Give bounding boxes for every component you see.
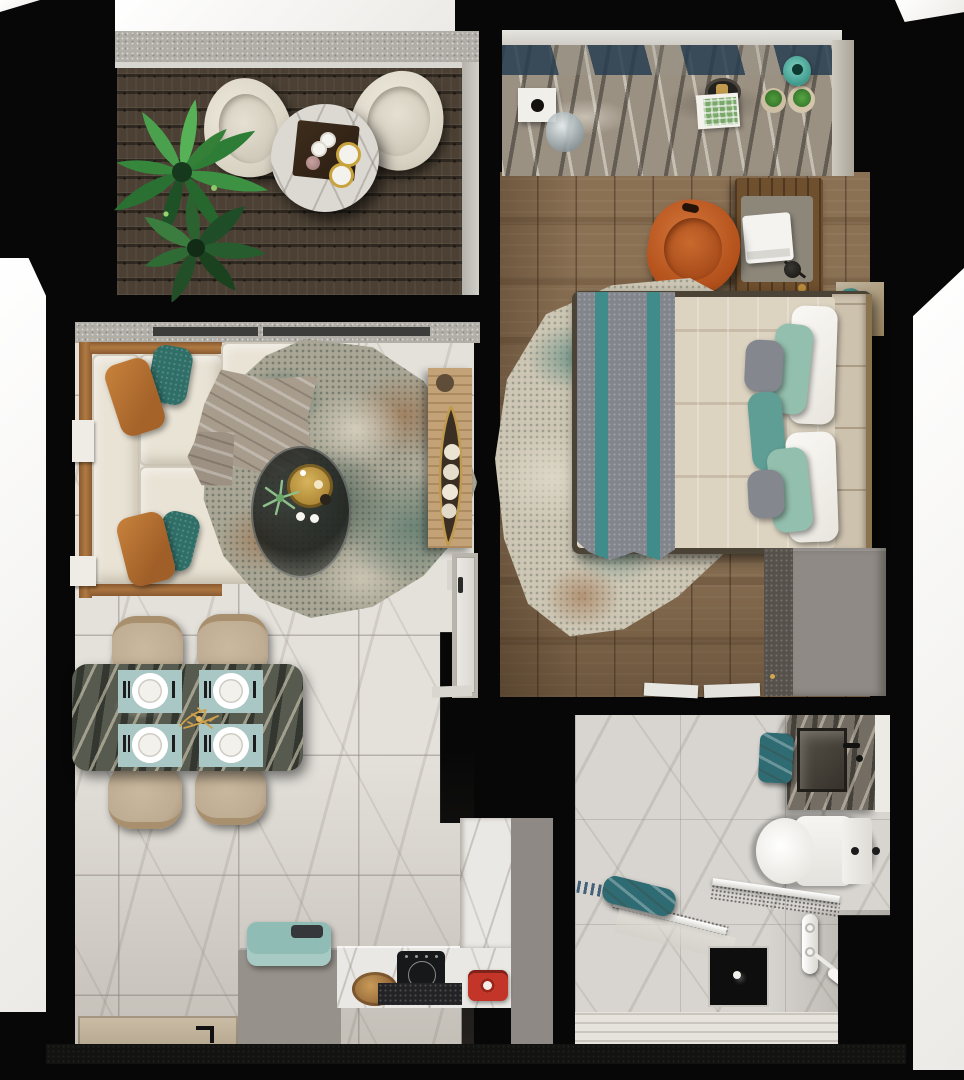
- succulent-green-1: [765, 90, 782, 107]
- exterior-corner-top-right: [895, 0, 964, 22]
- dinner-plate-1: [132, 673, 168, 709]
- kitchen-gray-side: [511, 818, 553, 1050]
- cutlery-3b: [128, 735, 130, 752]
- potted-plant: [104, 80, 276, 302]
- balcony-parapet: [115, 0, 455, 31]
- side-table-2: [70, 556, 96, 586]
- cutlery-1b: [128, 681, 130, 698]
- wardrobe: [793, 548, 886, 696]
- cutlery-2a: [204, 681, 207, 698]
- headboard-rail: [866, 294, 872, 551]
- magazine-cover: [703, 97, 738, 126]
- desk-lamp-head: [784, 261, 801, 278]
- cutlery-2b: [209, 681, 211, 698]
- entry-door-handle-v: [210, 1026, 214, 1043]
- gray-pillow-top: [744, 339, 785, 393]
- exterior-corner-top-left: [0, 0, 40, 12]
- console-dark-bowl: [436, 374, 454, 392]
- shower-knob-1: [805, 923, 815, 933]
- bottom-plinth-band: [46, 1044, 906, 1064]
- teal-vase-center: [792, 64, 803, 75]
- gray-pillow-bottom: [747, 469, 785, 519]
- hood-bar: [378, 983, 462, 1005]
- door-threshold-1: [644, 683, 699, 699]
- door-handle: [458, 577, 463, 593]
- red-toaster-dial: [480, 978, 495, 993]
- tray-sparkle-2: [314, 480, 323, 489]
- coffee-cup-2: [313, 143, 325, 155]
- succulent-green-2: [793, 89, 811, 107]
- dining-chair-bottom-right: [195, 762, 266, 825]
- cutlery-2c: [253, 681, 256, 698]
- cooktop-dot-3: [425, 955, 428, 958]
- sparkle-curtain: [764, 548, 793, 696]
- cutlery-4c: [253, 735, 256, 752]
- candle-2: [310, 514, 319, 523]
- floor-plan-render: [0, 0, 964, 1080]
- balcony-side-wall: [462, 62, 479, 295]
- exterior-ground-right: [913, 268, 964, 1070]
- dresser-wall-return: [832, 40, 854, 176]
- black-faucet: [843, 743, 860, 748]
- sink-basin: [797, 728, 847, 792]
- wall-flush-button: [872, 847, 880, 855]
- sofa-frame-bottom-rail: [90, 584, 222, 596]
- dinner-plate-3: [132, 727, 168, 763]
- striped-foot-throw: [577, 292, 675, 560]
- bread-box-handle: [291, 925, 323, 938]
- balcony-wall-band: [115, 31, 479, 62]
- window-glass-strip-1: [153, 327, 258, 336]
- gold-centerpiece: [172, 698, 228, 740]
- tray-dark-dish: [320, 494, 331, 505]
- bathroom: [575, 715, 890, 1060]
- door-threshold-2: [704, 683, 760, 698]
- cutlery-1a: [123, 681, 126, 698]
- coffee-cup-1: [322, 134, 334, 146]
- toilet-flush-button: [851, 847, 859, 855]
- hall-threshold: [432, 685, 472, 697]
- teal-hand-towel: [758, 732, 795, 784]
- decor-box-dot: [531, 99, 544, 112]
- leaf-bowl: [434, 406, 468, 546]
- cutlery-3a: [123, 735, 126, 752]
- dresser-top-edge: [502, 30, 842, 45]
- faucet-dot: [856, 755, 863, 762]
- sparkle-gold-dot: [770, 674, 775, 679]
- vanity-side-ledge: [875, 715, 890, 812]
- window-glass-strip-2: [263, 327, 430, 336]
- glass-sculpture: [546, 112, 584, 152]
- drain-dot: [733, 971, 741, 979]
- rose-cup: [306, 156, 320, 170]
- cutlery-1c: [172, 681, 175, 698]
- dining-chair-bottom-left: [108, 764, 182, 829]
- coffee-table-plant: [256, 474, 302, 520]
- exterior-ground-left: [0, 258, 46, 1012]
- desk-chair-seat: [664, 218, 722, 280]
- tall-marble-cabinet: [460, 818, 511, 948]
- cooktop-dot-4: [435, 955, 438, 958]
- cooktop-dot-2: [415, 955, 418, 958]
- gold-plate-2: [329, 163, 354, 188]
- side-table-1: [72, 420, 94, 462]
- toilet-bowl: [756, 818, 814, 884]
- cooktop-dot-1: [405, 955, 408, 958]
